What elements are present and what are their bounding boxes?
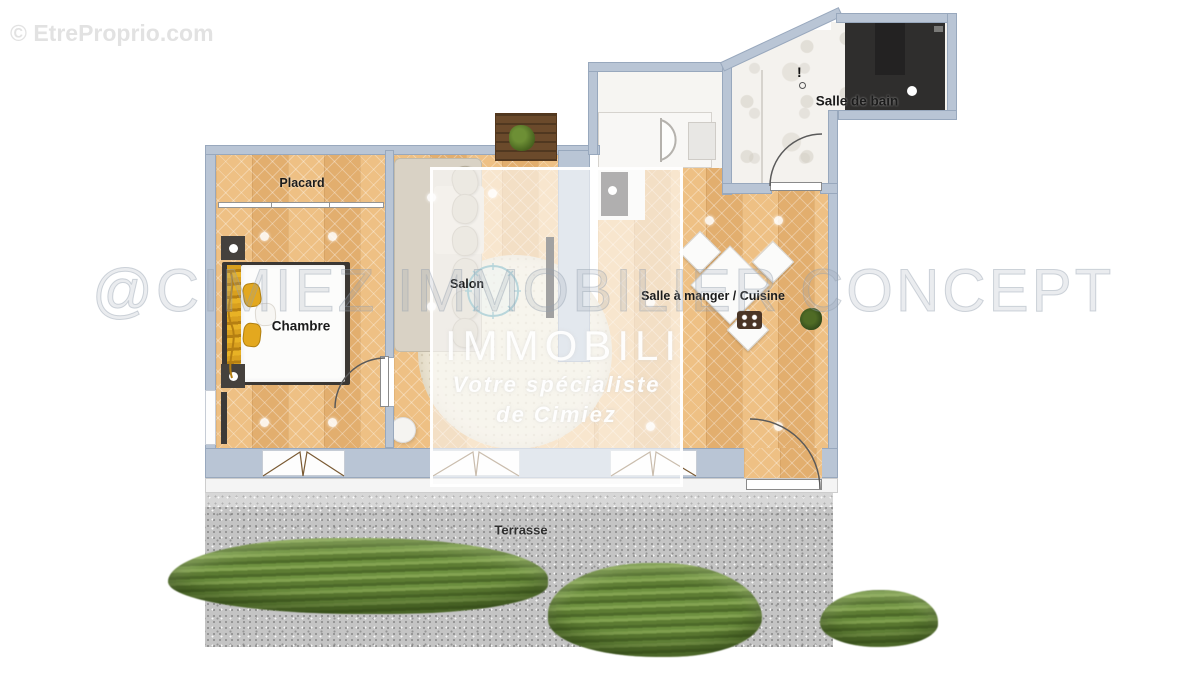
- label-salle-de-bain: Salle de bain: [816, 94, 899, 109]
- hedge-left: [168, 538, 548, 614]
- terrace-door-leaf: [746, 479, 822, 490]
- agency-watermark-tagline-1: Votre spécialiste: [433, 372, 680, 398]
- radiator-symbol: [221, 392, 227, 444]
- wall-kitchen-top: [588, 62, 732, 72]
- french-window-bedroom: [262, 450, 345, 476]
- hedge-right: [820, 590, 938, 647]
- nightstand-bottom-lamp: [229, 372, 238, 381]
- ceiling-light: [705, 216, 714, 225]
- ceiling-light: [328, 232, 337, 241]
- agency-watermark-title: IMMOBILI: [445, 322, 682, 370]
- wall-bathroom-door-right: [820, 183, 838, 194]
- wall-bathroom-door-left: [722, 183, 772, 194]
- closet-sliding-door: [218, 202, 384, 208]
- bathroom-partition-line: [761, 70, 763, 183]
- label-placard: Placard: [279, 176, 324, 190]
- window-left-wall: [205, 390, 216, 445]
- brand-watermark-overlay: @CIMIEZ IMMOBILIER CONCEPT: [92, 256, 1114, 325]
- shower-channel: [875, 22, 905, 75]
- ceiling-light: [260, 232, 269, 241]
- terrace-door-opening-floor: [744, 448, 822, 478]
- copyright-watermark: © EtreProprio.com: [10, 20, 214, 47]
- shower-drain: [907, 86, 917, 96]
- bathroom-door-leaf: [770, 182, 822, 191]
- wall-bathroom-bottom-right: [838, 110, 957, 120]
- bathroom-warning-dot: [799, 82, 806, 89]
- ceiling-light: [774, 422, 783, 431]
- plant-icon: [509, 125, 535, 151]
- ceiling-light: [328, 418, 337, 427]
- agency-watermark-tagline-2: de Cimiez: [433, 402, 680, 428]
- kitchen-appliance: [688, 122, 716, 160]
- wall-bedroom-living-lower: [385, 406, 394, 448]
- wall-kitchen-left: [588, 62, 598, 155]
- ceiling-light: [774, 216, 783, 225]
- nightstand-top-lamp: [229, 244, 238, 253]
- terrace-edge-band: [205, 493, 833, 507]
- agency-watermark-box: IMMOBILI Votre spécialiste de Cimiez: [430, 167, 683, 487]
- wall-bathroom-left: [722, 65, 732, 195]
- wall-bathroom-right: [947, 13, 957, 120]
- hedge-middle: [548, 563, 762, 657]
- label-terrasse: Terrasse: [494, 523, 547, 538]
- floor-plan-canvas: !: [0, 0, 1200, 675]
- bedroom-door-leaf: [380, 356, 389, 407]
- wall-bathroom-top: [836, 13, 957, 23]
- ceiling-light: [260, 418, 269, 427]
- bathroom-warning-icon: !: [797, 64, 802, 80]
- wall-bedroom-living-upper: [385, 150, 394, 358]
- shower-control: [934, 26, 943, 32]
